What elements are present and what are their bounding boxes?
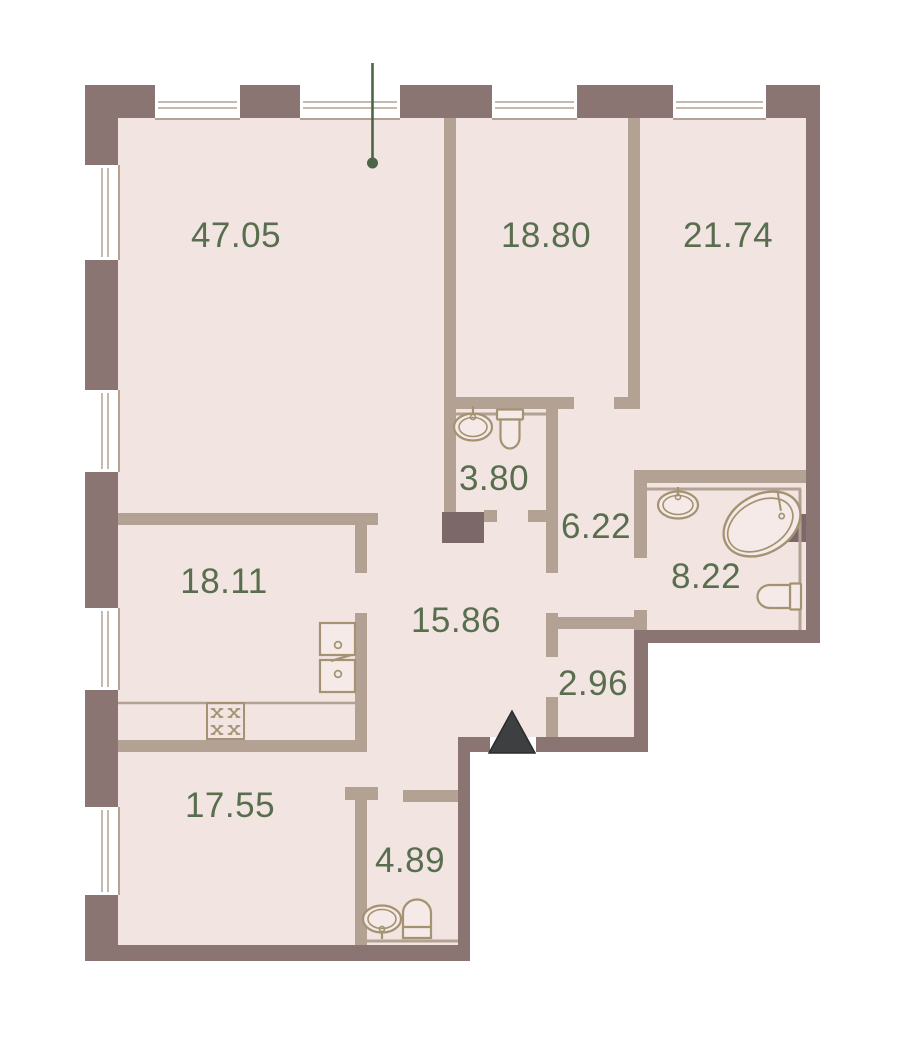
room-label-bedroom-top: 18.80	[501, 216, 591, 256]
room-label-kitchen: 18.11	[180, 562, 268, 602]
wall-guestbath-top	[403, 790, 458, 802]
exterior-wall-entry-left	[458, 737, 490, 752]
duct-shaft	[442, 512, 484, 543]
wall-kitchen-top	[118, 513, 378, 525]
room-label-corridor: 6.22	[561, 507, 631, 547]
wall-kitchen-right-lower	[355, 613, 367, 752]
window	[85, 807, 120, 895]
room-label-storage: 2.96	[558, 664, 628, 704]
room-label-wc-small: 3.80	[459, 459, 529, 499]
exterior-wall-corner-vertical	[634, 630, 648, 752]
wall-doorjamb-cross	[345, 787, 378, 800]
room-label-bathroom-guest: 4.89	[375, 841, 445, 881]
exterior-wall-entry-right	[536, 737, 648, 752]
duct-niche	[787, 514, 806, 542]
window	[492, 85, 577, 120]
window	[85, 608, 120, 690]
wall-wc-bottom-right	[528, 510, 558, 522]
wall-storage-left-lower	[546, 697, 558, 737]
wall-living-bedroom-divider	[444, 118, 456, 512]
window	[300, 85, 400, 120]
floor-area-top	[118, 118, 806, 630]
room-label-living-room: 47.05	[191, 216, 281, 256]
window	[155, 85, 240, 120]
wall-kitchen-bottom	[118, 740, 367, 752]
room-label-hallway: 15.86	[411, 601, 501, 641]
room-label-bedroom-right: 21.74	[683, 216, 773, 256]
exterior-wall-right	[806, 85, 820, 643]
exterior-wall-bottom-left	[85, 945, 470, 961]
window	[85, 165, 120, 260]
window	[673, 85, 766, 120]
exterior-wall-entry-side	[458, 737, 470, 945]
wall-bedroom-bath-divider	[355, 787, 367, 945]
wall-kitchen-right-upper	[355, 513, 367, 573]
room-label-bathroom-main: 8.22	[671, 557, 741, 597]
room-label-bedroom-bottom: 17.55	[185, 786, 275, 826]
wall-storage-top	[548, 617, 638, 629]
window	[85, 390, 120, 472]
wall-bathroom-top	[634, 470, 806, 483]
exterior-wall-bath-bottom	[634, 630, 820, 643]
wall-wc-corridor	[546, 397, 558, 573]
wall-storage-left-upper	[546, 613, 558, 657]
floor-plan: 47.05 18.80 21.74 3.80 6.22 8.22 18.11 1…	[0, 0, 900, 1045]
wall-bathroom-left-upper	[634, 483, 647, 558]
wall-bedrooms-divider	[628, 118, 640, 409]
wall-wc-bottom-left	[484, 510, 497, 522]
